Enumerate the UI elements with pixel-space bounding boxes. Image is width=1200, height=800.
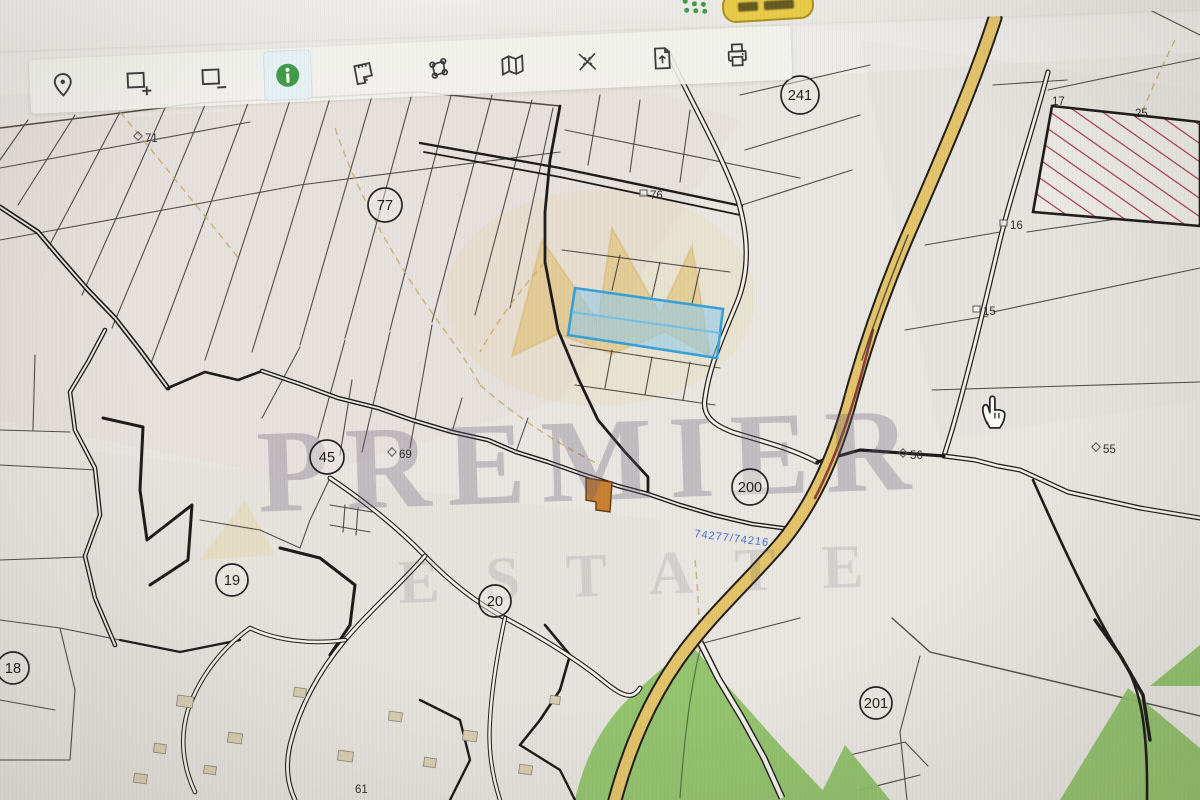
- polygon-select-tool[interactable]: [414, 43, 462, 93]
- screen: PREMIER ESTATE 74277/74216 2417745191820…: [0, 0, 1200, 800]
- watermark-line1: PREMIER: [255, 383, 928, 537]
- svg-text:76: 76: [650, 190, 663, 202]
- zoom-out-rect-tool[interactable]: [189, 54, 237, 104]
- svg-text:45: 45: [319, 450, 335, 466]
- measure-area-tool[interactable]: [339, 47, 387, 97]
- info-icon: [276, 63, 300, 87]
- svg-text:18: 18: [5, 661, 21, 677]
- svg-text:15: 15: [983, 306, 996, 318]
- zoom-in-rect-tool[interactable]: [114, 57, 162, 107]
- map-layers-tool[interactable]: [488, 40, 536, 90]
- polygon-select-icon: [430, 59, 448, 79]
- svg-text:55: 55: [1103, 444, 1116, 456]
- svg-text:19: 19: [224, 573, 240, 589]
- svg-text:20: 20: [487, 594, 503, 610]
- svg-text:69: 69: [399, 449, 412, 461]
- svg-text:241: 241: [788, 88, 812, 104]
- map-icon: [502, 56, 523, 75]
- svg-text:25: 25: [1135, 108, 1148, 120]
- measure-area-icon: [354, 63, 372, 84]
- cadastral-map[interactable]: PREMIER ESTATE 74277/74216 2417745191820…: [0, 0, 1200, 800]
- road-network-icon: [579, 53, 596, 70]
- export-document-tool[interactable]: [638, 33, 686, 83]
- print-icon: [728, 44, 746, 66]
- svg-text:200: 200: [738, 480, 762, 496]
- hatched-parcel[interactable]: [1033, 106, 1200, 226]
- zoom-out-rect-icon: [202, 69, 226, 88]
- svg-text:17: 17: [1052, 96, 1065, 108]
- svg-text:61: 61: [355, 784, 368, 796]
- svg-text:201: 201: [864, 696, 888, 712]
- zoom-in-rect-icon: [127, 73, 151, 97]
- export-document-icon: [655, 48, 670, 69]
- svg-text:16: 16: [1010, 220, 1023, 232]
- road-network-tool[interactable]: [563, 37, 611, 87]
- menu-dots-icon[interactable]: [683, 0, 718, 15]
- print-tool[interactable]: [713, 30, 761, 80]
- location-pin-icon: [54, 74, 71, 96]
- location-pin-tool[interactable]: [39, 60, 87, 110]
- svg-text:71: 71: [145, 133, 158, 145]
- info-tool[interactable]: [264, 50, 312, 100]
- svg-text:77: 77: [377, 198, 393, 214]
- svg-text:56: 56: [910, 450, 923, 462]
